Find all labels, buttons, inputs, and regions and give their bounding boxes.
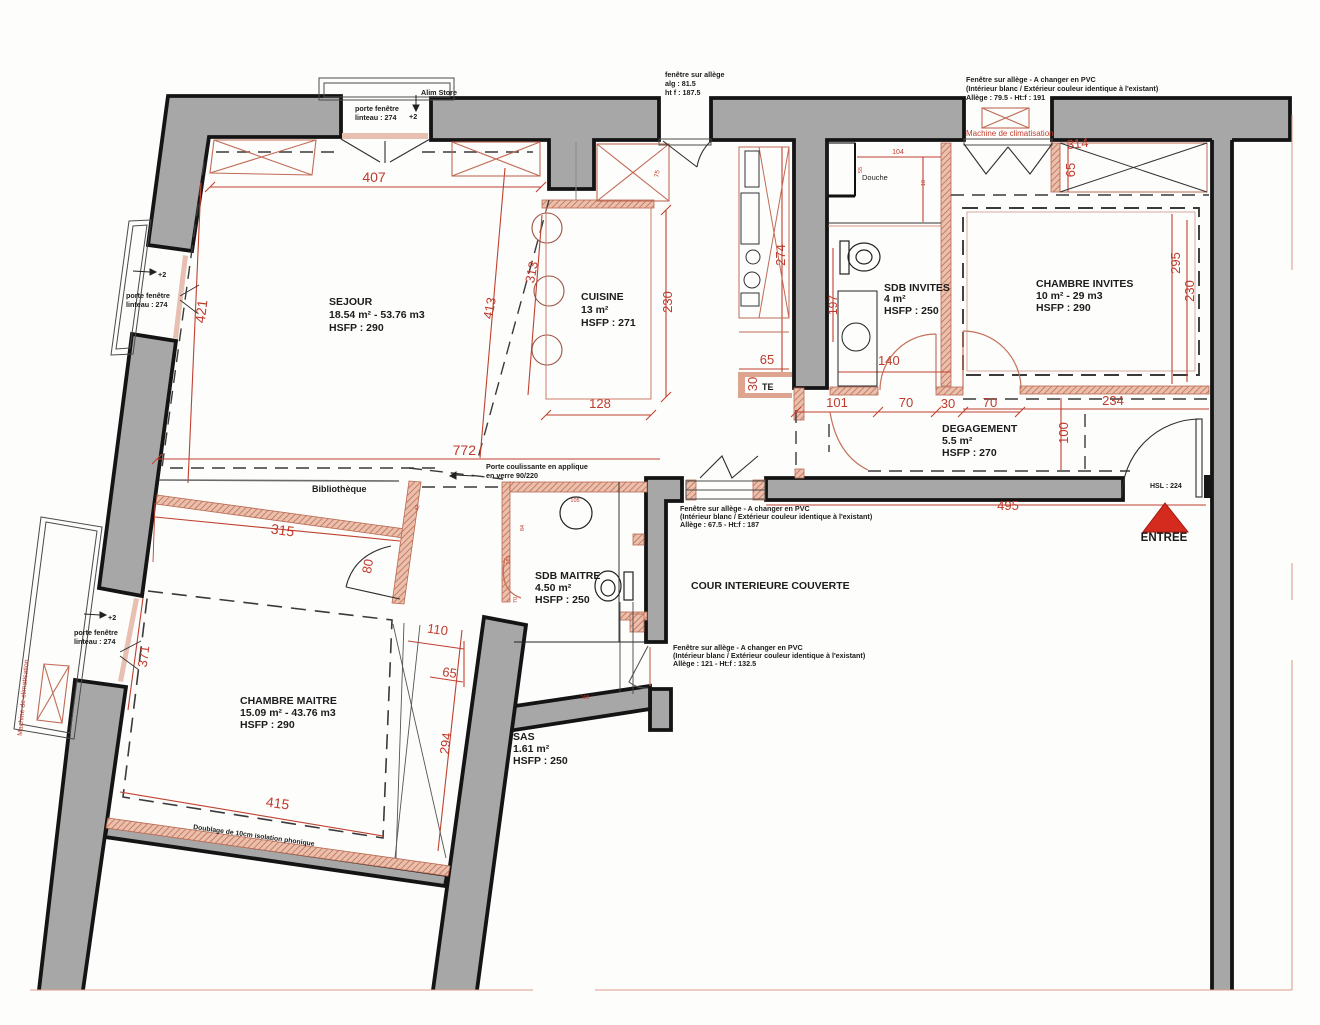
- svg-text:230: 230: [1182, 280, 1197, 302]
- svg-text:65: 65: [441, 664, 457, 681]
- svg-text:161: 161: [506, 555, 512, 564]
- svg-text:315: 315: [270, 521, 296, 540]
- svg-text:70: 70: [899, 395, 913, 410]
- svg-text:108: 108: [581, 695, 590, 701]
- svg-text:104: 104: [892, 149, 904, 156]
- svg-text:porte fenêtre: porte fenêtre: [126, 291, 170, 300]
- svg-text:HSFP : 250: HSFP : 250: [884, 305, 939, 317]
- svg-text:HSFP : 290: HSFP : 290: [1036, 302, 1091, 314]
- svg-text:Porte coulissante en applique: Porte coulissante en applique: [486, 462, 588, 471]
- svg-text:294: 294: [437, 732, 455, 755]
- svg-text:HSFP : 270: HSFP : 270: [942, 447, 997, 459]
- svg-text:CHAMBRE MAITRE: CHAMBRE MAITRE: [240, 695, 337, 707]
- svg-text:70: 70: [983, 395, 997, 410]
- svg-text:porte fenêtre: porte fenêtre: [74, 628, 118, 637]
- svg-text:65: 65: [760, 352, 774, 367]
- svg-text:65: 65: [1063, 163, 1078, 177]
- svg-text:110: 110: [426, 621, 449, 639]
- svg-text:linteau : 274: linteau : 274: [126, 300, 168, 309]
- svg-text:linteau : 274: linteau : 274: [355, 113, 397, 122]
- svg-text:314: 314: [1066, 135, 1089, 152]
- svg-text:HSFP : 271: HSFP : 271: [581, 317, 636, 329]
- svg-text:+2: +2: [108, 613, 116, 622]
- svg-text:DEGAGEMENT: DEGAGEMENT: [942, 423, 1018, 435]
- svg-text:CHAMBRE INVITES: CHAMBRE INVITES: [1036, 278, 1133, 290]
- svg-text:407: 407: [362, 169, 386, 185]
- svg-text:13 m²: 13 m²: [581, 304, 609, 316]
- svg-text:SAS: SAS: [513, 731, 535, 743]
- svg-text:55: 55: [858, 167, 864, 173]
- svg-text:234: 234: [1102, 393, 1124, 408]
- svg-text:42: 42: [415, 504, 422, 511]
- svg-text:en verre 90/220: en verre 90/220: [486, 471, 538, 480]
- svg-text:SDB MAITRE: SDB MAITRE: [535, 570, 600, 582]
- svg-text:Douche: Douche: [862, 173, 888, 182]
- svg-text:4.50 m²: 4.50 m²: [535, 582, 572, 594]
- svg-text:Allège : 121 - Ht:f : 132.5: Allège : 121 - Ht:f : 132.5: [673, 659, 756, 668]
- svg-text:15.09 m² - 43.76 m3: 15.09 m² - 43.76 m3: [240, 707, 336, 719]
- svg-text:COUR INTERIEURE COUVERTE: COUR INTERIEURE COUVERTE: [691, 580, 850, 592]
- svg-text:18: 18: [921, 180, 927, 186]
- svg-text:HSFP : 250: HSFP : 250: [535, 594, 590, 606]
- svg-text:HSFP : 290: HSFP : 290: [329, 322, 384, 334]
- svg-text:Fenêtre sur allège - A changer: Fenêtre sur allège - A changer en PVC: [966, 75, 1096, 84]
- svg-text:10 m² - 29 m3: 10 m² - 29 m3: [1036, 290, 1103, 302]
- svg-text:70: 70: [513, 597, 519, 603]
- svg-text:(Intérieur blanc / Extérieur c: (Intérieur blanc / Extérieur couleur ide…: [966, 84, 1159, 93]
- svg-text:274: 274: [773, 244, 788, 266]
- svg-text:128: 128: [589, 396, 611, 411]
- svg-text:ENTREE: ENTREE: [1141, 532, 1188, 544]
- svg-text:84: 84: [520, 525, 526, 531]
- svg-text:30: 30: [941, 396, 955, 411]
- svg-text:4 m²: 4 m²: [884, 293, 906, 305]
- svg-text:+2: +2: [409, 112, 417, 121]
- svg-text:5.5 m²: 5.5 m²: [942, 435, 973, 447]
- svg-text:101: 101: [826, 395, 848, 410]
- svg-text:SEJOUR: SEJOUR: [329, 296, 373, 308]
- svg-text:230: 230: [660, 291, 675, 313]
- svg-text:772: 772: [453, 442, 477, 458]
- svg-text:Alim Store: Alim Store: [421, 88, 457, 97]
- svg-text:linteau : 274: linteau : 274: [74, 637, 116, 646]
- svg-text:porte fenêtre: porte fenêtre: [355, 104, 399, 113]
- svg-text:HSL : 224: HSL : 224: [1150, 483, 1182, 490]
- svg-text:HSFP : 290: HSFP : 290: [240, 719, 295, 731]
- svg-text:Allège : 79.5 - Ht:f : 191: Allège : 79.5 - Ht:f : 191: [966, 93, 1045, 102]
- svg-text:Bibliothèque: Bibliothèque: [312, 484, 367, 494]
- svg-text:371: 371: [135, 645, 153, 668]
- svg-text:fenêtre sur allège: fenêtre sur allège: [665, 70, 725, 79]
- svg-text:HSFP : 250: HSFP : 250: [513, 755, 568, 767]
- svg-text:295: 295: [1168, 252, 1183, 274]
- svg-text:1.61 m²: 1.61 m²: [513, 743, 550, 755]
- svg-text:105: 105: [570, 498, 579, 504]
- svg-text:Machine de climatisation: Machine de climatisation: [966, 129, 1054, 138]
- svg-text:Allège : 67.5 - Ht:f : 187: Allège : 67.5 - Ht:f : 187: [680, 520, 759, 529]
- svg-text:ht f : 187.5: ht f : 187.5: [665, 88, 701, 97]
- svg-text:30: 30: [745, 377, 760, 391]
- svg-text:100: 100: [1056, 422, 1071, 444]
- svg-text:CUISINE: CUISINE: [581, 291, 624, 303]
- svg-text:alg : 81.5: alg : 81.5: [665, 79, 696, 88]
- svg-text:415: 415: [265, 794, 291, 813]
- svg-text:+2: +2: [158, 270, 166, 279]
- svg-text:18.54 m² - 53.76 m3: 18.54 m² - 53.76 m3: [329, 309, 425, 321]
- svg-text:495: 495: [997, 498, 1019, 513]
- svg-text:TE: TE: [762, 382, 774, 392]
